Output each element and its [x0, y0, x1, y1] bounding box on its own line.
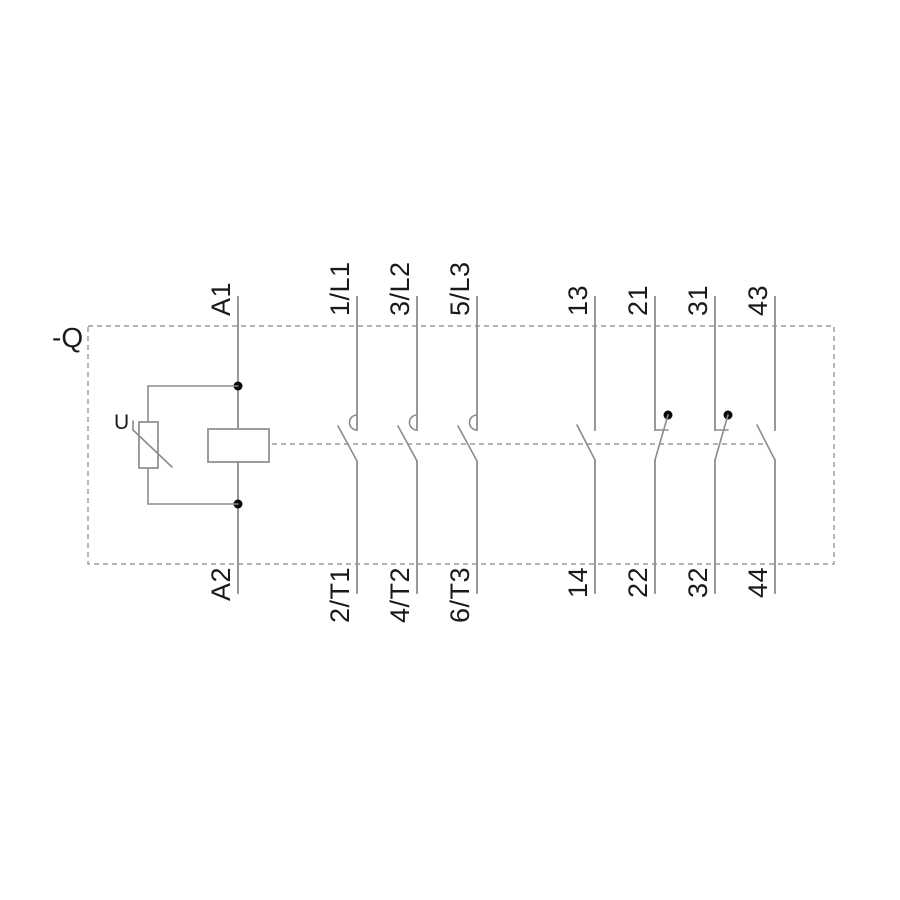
terminal-label-a1: A1: [208, 282, 235, 316]
terminal-label-44: 44: [745, 567, 772, 598]
terminal-label-22: 22: [625, 567, 652, 598]
aux13-moving-blade: [577, 425, 595, 460]
terminal-label-1l1: 1/L1: [327, 261, 354, 316]
terminal-label-31: 31: [685, 285, 712, 316]
terminal-label-21: 21: [625, 285, 652, 316]
pole2-fixed-contact-arc: [410, 415, 417, 430]
terminal-label-a2: A2: [208, 567, 235, 601]
terminal-label-14: 14: [565, 567, 592, 598]
aux21-moving-blade: [655, 415, 668, 460]
device-boundary-dashed-box: [88, 326, 834, 564]
circuit-diagram: -Q U A1 1/L1 3/L2 5/L3 13 21 31 43 A2 2/…: [0, 0, 900, 900]
coil-symbol: [208, 429, 269, 462]
terminal-label-3l2: 3/L2: [387, 261, 414, 316]
diagram-graphics: [0, 0, 900, 900]
terminal-label-43: 43: [745, 285, 772, 316]
device-reference-label: -Q: [52, 324, 83, 352]
terminal-label-6t3: 6/T3: [447, 567, 474, 623]
varistor-voltage-label: U: [114, 412, 129, 433]
aux43-moving-blade: [757, 425, 775, 460]
aux31-moving-blade: [715, 415, 728, 460]
terminal-label-13: 13: [565, 285, 592, 316]
pole1-fixed-contact-arc: [350, 415, 357, 430]
terminal-label-32: 32: [685, 567, 712, 598]
terminal-label-2t1: 2/T1: [327, 567, 354, 623]
pole3-fixed-contact-arc: [470, 415, 477, 430]
terminal-label-5l3: 5/L3: [447, 261, 474, 316]
terminal-label-4t2: 4/T2: [387, 567, 414, 623]
